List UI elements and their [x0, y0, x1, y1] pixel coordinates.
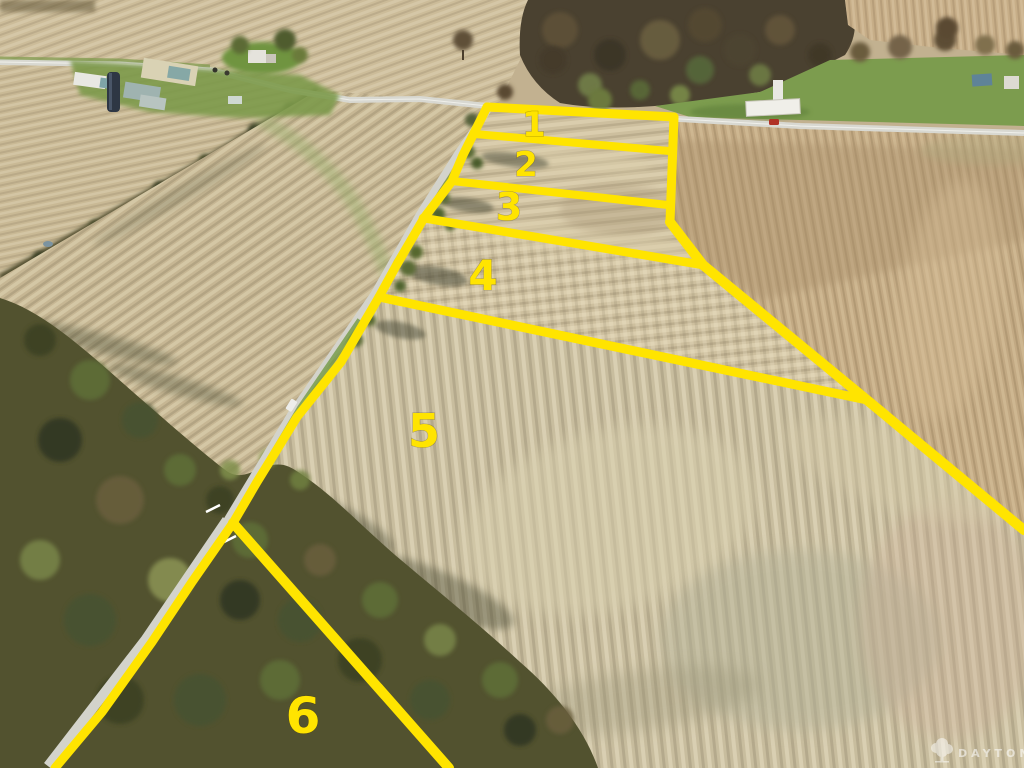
- lot-2-label: 2: [514, 145, 538, 185]
- creek-water: [43, 241, 53, 247]
- lot-6-label: 6: [286, 687, 321, 745]
- watermark-text: DAYTON: [958, 747, 1024, 760]
- aerial-photo-canvas: 1 2 3 4 5 6 DAYTON: [0, 0, 1024, 768]
- white-shed: [1004, 76, 1019, 89]
- lot-4-label: 4: [468, 251, 497, 300]
- lot-3-label: 3: [496, 185, 522, 229]
- aerial-photo: 1 2 3 4 5 6 DAYTON: [0, 0, 1024, 768]
- blue-roof-shed: [972, 73, 993, 86]
- bare-tree: [936, 17, 958, 39]
- bare-tree-2: [453, 30, 473, 50]
- silo: [107, 72, 120, 112]
- red-car: [769, 119, 779, 125]
- lot-1-label: 1: [522, 105, 546, 145]
- white-canopy: [746, 99, 801, 117]
- farm-house: [248, 50, 266, 63]
- lot-5-label: 5: [408, 404, 440, 458]
